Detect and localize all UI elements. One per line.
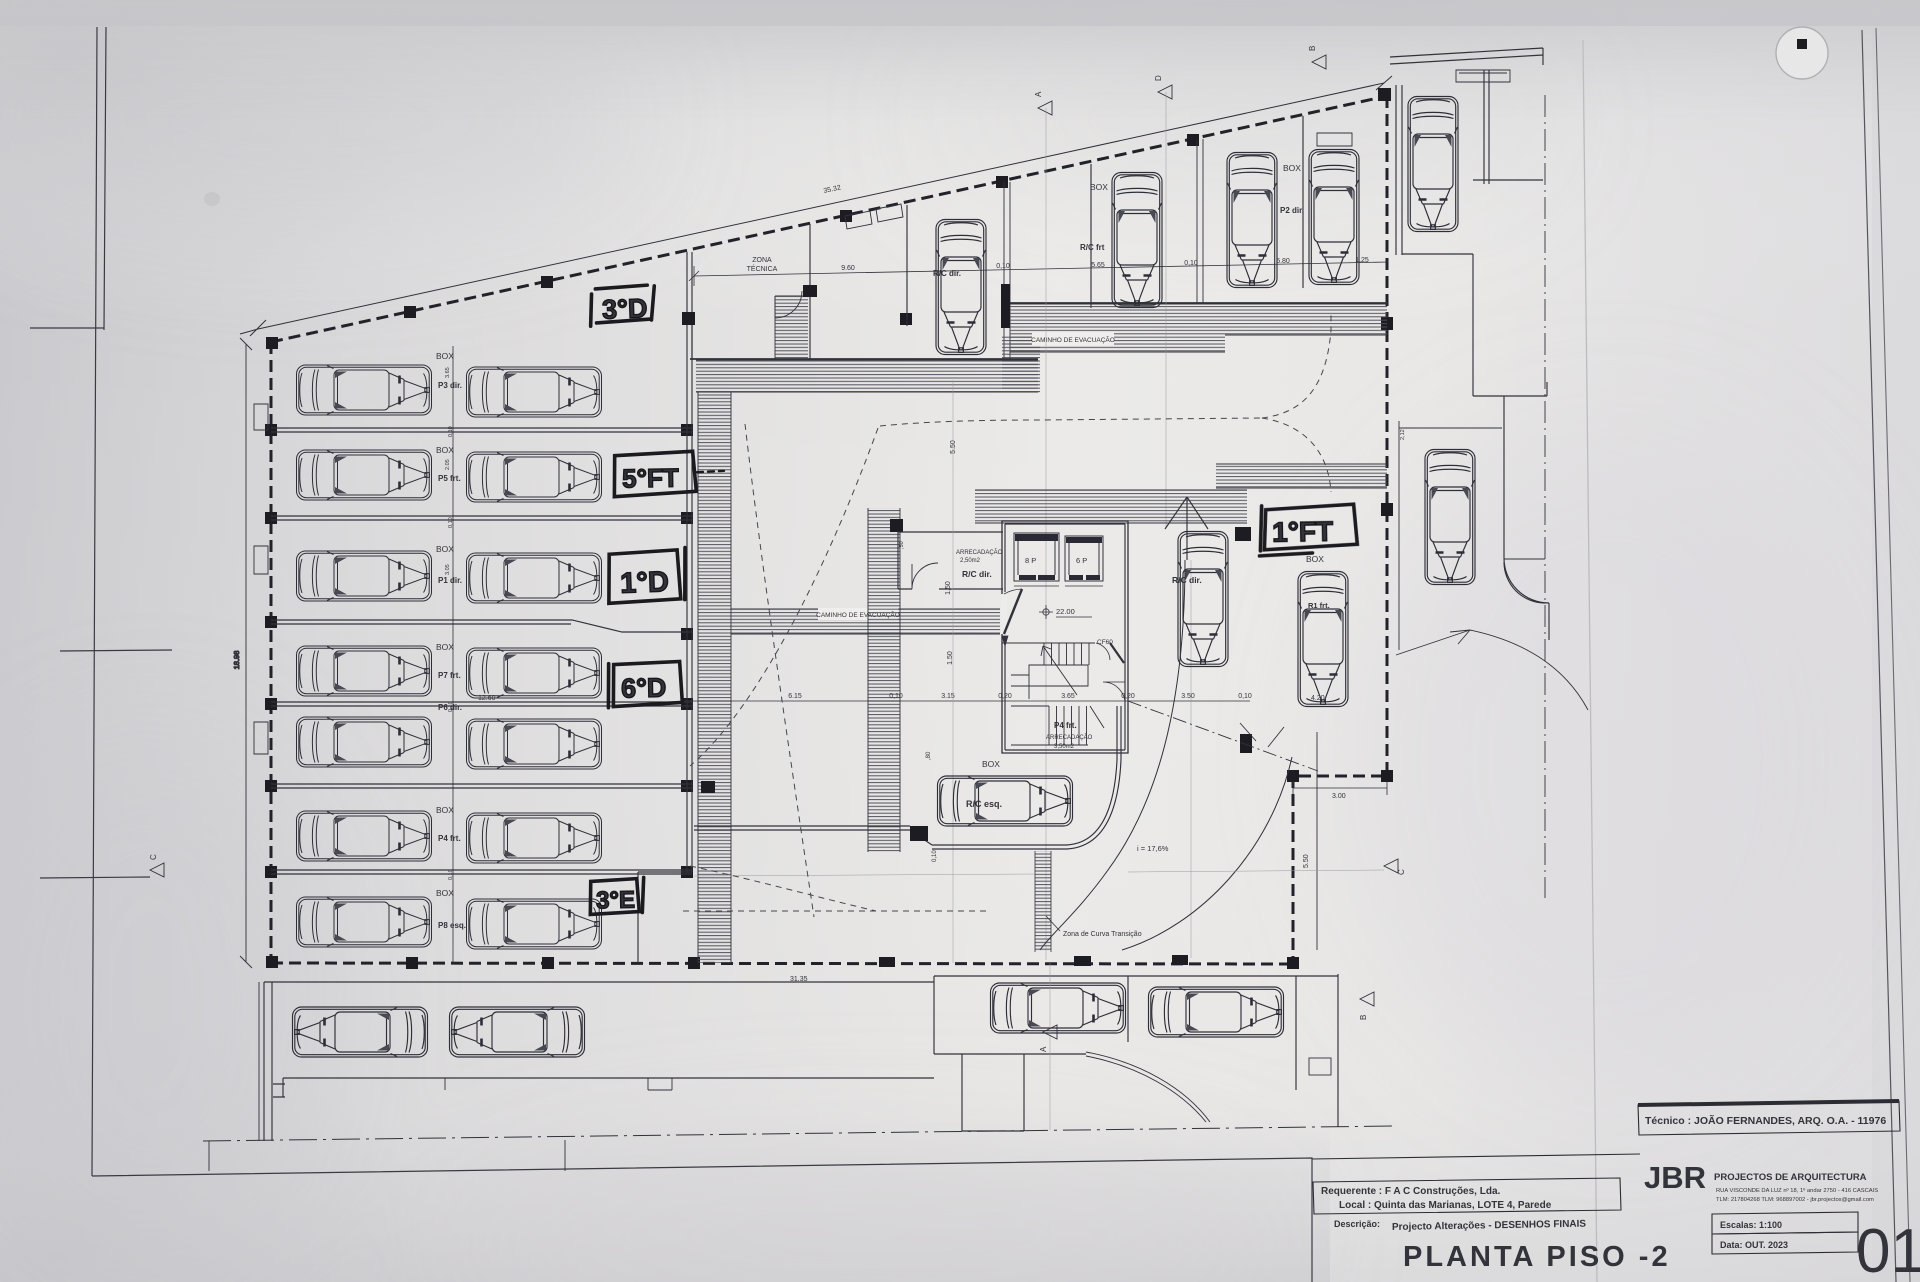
svg-text:6 P: 6 P [1076,556,1087,565]
svg-text:Zona de Curva Transição: Zona de Curva Transição [1063,931,1142,938]
svg-text:0,20: 0,20 [1121,693,1135,700]
svg-text:BOX: BOX [436,544,454,554]
svg-text:P8 esq.: P8 esq. [438,921,466,930]
svg-text:i = 17,6%: i = 17,6% [1137,844,1169,853]
svg-text:JBR: JBR [1644,1160,1706,1195]
svg-text:0,10: 0,10 [889,693,903,700]
svg-text:Requerente : F A C Construçõe: Requerente : F A C Construções, Lda. [1321,1186,1501,1197]
svg-text:P4 frt.: P4 frt. [438,834,461,843]
svg-text:Técnico : JOÃO FERNANDES, ARQ.: Técnico : JOÃO FERNANDES, ARQ. O.A. - 11… [1645,1114,1886,1127]
svg-text:BOX: BOX [1283,163,1301,173]
svg-text:5°FT: 5°FT [622,463,679,494]
svg-text:TÉCNICA: TÉCNICA [747,264,778,273]
svg-text:BOX: BOX [1306,554,1324,564]
svg-text:P4 frt.: P4 frt. [1054,721,1077,730]
svg-text:6°D: 6°D [621,673,667,704]
svg-text:BOX: BOX [436,445,454,455]
svg-text:5.80: 5.80 [1276,258,1290,265]
svg-text:A: A [1039,1046,1048,1052]
svg-text:R/C esq.: R/C esq. [966,799,1002,809]
svg-text:P3 dir.: P3 dir. [438,381,462,390]
svg-text:R1 frt.: R1 frt. [1308,601,1330,610]
svg-text:BOX: BOX [436,642,454,652]
svg-text:PLANTA PISO -2: PLANTA PISO -2 [1403,1241,1671,1273]
svg-text:R/C dir.: R/C dir. [962,569,992,579]
svg-text:0,10: 0,10 [1184,260,1198,267]
svg-text:01: 01 [1856,1217,1920,1282]
svg-text:8 P: 8 P [1025,556,1036,565]
svg-text:R/C dir.: R/C dir. [1172,575,1202,585]
svg-text:0,10: 0,10 [996,263,1010,270]
svg-text:1°FT: 1°FT [1272,516,1334,548]
svg-text:P5 frt.: P5 frt. [438,474,461,483]
svg-text:Escalas: 1:100: Escalas: 1:100 [1720,1220,1782,1230]
svg-text:P2 dir.: P2 dir. [1280,206,1304,215]
svg-text:1°D: 1°D [620,566,670,600]
svg-text:31.35: 31.35 [790,976,808,983]
svg-text:TLM: 217804268 TLM: 968897002: TLM: 217804268 TLM: 968897002 - jbr.proj… [1716,1197,1874,1203]
svg-text:3°D: 3°D [602,293,648,325]
svg-text:B: B [1308,46,1317,51]
svg-text:2.05: 2.05 [445,459,451,470]
svg-text:5.65: 5.65 [1091,262,1105,269]
svg-text:0,10: 0,10 [448,426,454,437]
svg-text:,80: ,80 [926,751,932,760]
svg-text:C: C [149,854,158,860]
svg-text:ARRECADAÇÃO: ARRECADAÇÃO [956,549,1003,556]
svg-text:Data: OUT. 2023: Data: OUT. 2023 [1720,1240,1788,1250]
svg-text:18.98: 18.98 [232,651,241,670]
svg-text:3,50m2: 3,50m2 [1054,744,1075,750]
svg-text:BOX: BOX [436,805,454,815]
svg-text:2,50m2: 2,50m2 [960,558,981,564]
svg-text:4.20: 4.20 [1311,695,1325,702]
svg-text:0,20: 0,20 [998,693,1012,700]
svg-text:CAMINHO DE EVACUAÇÃO: CAMINHO DE EVACUAÇÃO [1031,335,1115,344]
svg-text:ARRECADAÇÃO: ARRECADAÇÃO [1046,734,1093,741]
svg-text:BOX: BOX [982,759,1000,769]
svg-text:A: A [1034,91,1043,97]
svg-text:0,10: 0,10 [448,517,454,528]
svg-text:22.00: 22.00 [1056,607,1075,616]
svg-text:C: C [1397,869,1406,875]
svg-text:R/C dir.: R/C dir. [933,269,961,278]
svg-text:BOX: BOX [436,351,454,361]
svg-text:1,50: 1,50 [945,581,952,595]
svg-text:5.50: 5.50 [950,440,957,454]
svg-text:B: B [1359,1015,1368,1020]
svg-text:3.65: 3.65 [1061,693,1075,700]
svg-text:RUA VISCONDE DA LUZ nº 18, 1º: RUA VISCONDE DA LUZ nº 18, 1º andar 2750… [1716,1187,1878,1194]
svg-text:3.65: 3.65 [445,367,451,378]
svg-text:,50: ,50 [899,541,905,549]
svg-text:3.50: 3.50 [1181,693,1195,700]
svg-text:6.15: 6.15 [788,693,802,700]
svg-text:ZONA: ZONA [752,257,772,264]
svg-text:3.05: 3.05 [445,564,451,575]
svg-text:5.50: 5.50 [1303,854,1310,868]
svg-text:0,10: 0,10 [932,850,938,862]
svg-text:0,10: 0,10 [448,701,454,712]
svg-text:PROJECTOS DE ARQUITECTURA: PROJECTOS DE ARQUITECTURA [1714,1172,1867,1183]
svg-text:2,12: 2,12 [1400,429,1406,440]
svg-text:P1 dir.: P1 dir. [438,576,462,585]
svg-text:0,10: 0,10 [448,869,454,880]
svg-text:P7 frt.: P7 frt. [438,671,461,680]
svg-text:BOX: BOX [436,888,454,898]
svg-text:BOX: BOX [1090,182,1108,192]
svg-text:0,10: 0,10 [1238,693,1252,700]
svg-text:R/C frt: R/C frt [1080,243,1105,252]
svg-text:12.60: 12.60 [478,695,496,702]
svg-text:3°E: 3°E [596,887,635,915]
svg-text:3.00: 3.00 [1332,793,1346,800]
svg-text:Local : Quinta das Marianas, L: Local : Quinta das Marianas, LOTE 4, Par… [1339,1200,1552,1211]
svg-text:D: D [1154,75,1163,81]
svg-text:9.60: 9.60 [841,265,855,272]
svg-text:Descrição:: Descrição: [1334,1219,1380,1229]
